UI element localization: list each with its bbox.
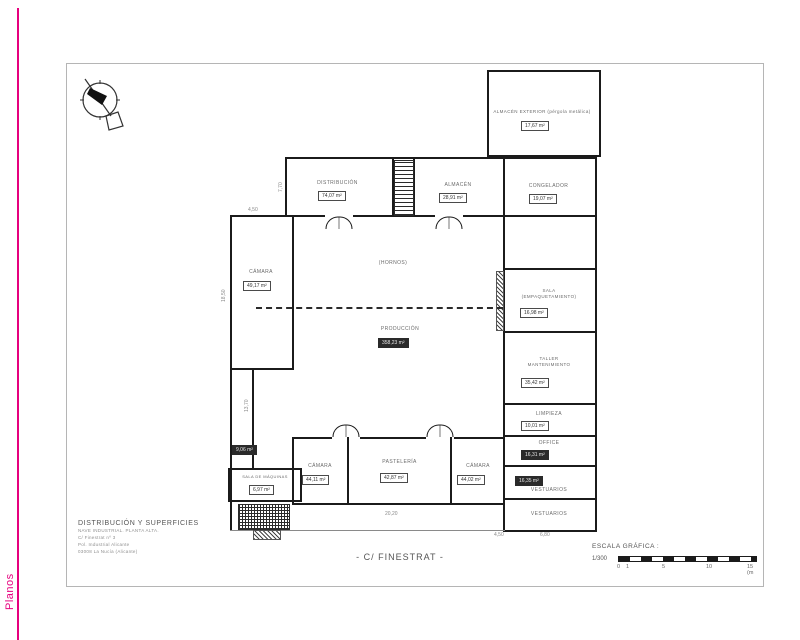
scale-tick: 10 (706, 564, 712, 570)
wall (503, 435, 597, 437)
hatch-wall (496, 271, 504, 331)
double-door-icon (426, 424, 454, 437)
title-block: DISTRIBUCIÓN Y SUPERFICIES NAVE INDUSTRI… (78, 520, 238, 555)
room-label-hornos: (HORNOS) (350, 260, 436, 266)
double-door-icon (332, 424, 360, 437)
dashed-divider (256, 307, 503, 309)
room-label-distribucion: DISTRIBUCIÓN (300, 180, 375, 186)
room-label-sala: SALA (542, 288, 555, 293)
room-label-taller: TALLER (539, 356, 558, 361)
double-door-icon (435, 216, 463, 229)
wall (503, 157, 505, 532)
room-label-pasteleria: PASTELERÍA (350, 459, 449, 465)
room-label-sala-maquinas: SALA DE MÁQUINAS (229, 474, 301, 480)
area-badge-sala-maquinas: 6,97 m² (249, 485, 274, 495)
wall (450, 437, 452, 505)
room-label-camara-izq: CÁMARA (232, 269, 290, 275)
area-badge-sala: 16,98 m² (520, 308, 548, 318)
wall (347, 437, 349, 505)
area-badge-almacen: 28,91 m² (439, 193, 467, 203)
wall (230, 368, 294, 370)
title-block-heading: DISTRIBUCIÓN Y SUPERFICIES (78, 520, 238, 527)
scale-tick: 5 (662, 564, 665, 570)
wall (228, 468, 302, 470)
room-label-almacen: ALMACÉN (420, 182, 496, 188)
area-badge-limpieza: 10,01 m² (521, 421, 549, 431)
wall (292, 503, 505, 505)
wall (230, 215, 232, 530)
wall (285, 157, 597, 159)
scale-tick: 0 (617, 564, 620, 570)
room-label-almacen-exterior: ALMACÉN EXTERIOR (pérgola metálica) (489, 109, 595, 115)
wall (595, 157, 597, 532)
wall (463, 215, 597, 217)
wall (285, 157, 287, 217)
wall (454, 437, 505, 439)
room-label-office: OFFICE (505, 440, 593, 446)
area-badge-camara-b2: 44,02 m² (457, 475, 485, 485)
room-label-produccion: PRODUCCIÓN (360, 326, 440, 332)
sheet-frame (66, 63, 764, 587)
wall (230, 215, 325, 217)
area-badge-pasteleria: 42,87 m² (380, 473, 408, 483)
room-label-vestuarios-2: VESTUARIOS (505, 511, 593, 517)
wall (503, 530, 597, 532)
room-label-sala-2: (EMPAQUETAMIENTO) (522, 294, 577, 299)
north-arrow-icon (76, 74, 130, 140)
wall (503, 498, 597, 500)
double-door-icon (325, 216, 353, 229)
dimension-label: 4,50 (494, 532, 504, 538)
wall (503, 403, 597, 405)
hatch-block (253, 530, 281, 540)
area-badge-pasillo: 9,06 m² (232, 445, 257, 455)
title-block-line: NAVE INDUSTRIAL. PLANTA ALTA. (78, 527, 238, 534)
scale-tick: 15 (m (747, 564, 760, 576)
street-label: - C/ FINESTRAT - (330, 552, 470, 562)
graphic-scale: ESCALA GRÁFICA : 1/300 0 1 5 10 15 (m (592, 543, 760, 550)
title-block-line: Pol. Industrial Alicante (78, 541, 238, 548)
wall (292, 215, 294, 368)
area-badge-produccion: 358,23 m² (378, 338, 409, 348)
room-label-vestuarios-1: VESTUARIOS (505, 487, 593, 493)
dimension-label: 18,50 (221, 289, 227, 302)
scale-ratio: 1/300 (592, 556, 607, 562)
scale-tick: 1 (626, 564, 629, 570)
wall (360, 437, 426, 439)
area-badge-taller: 35,42 m² (521, 378, 549, 388)
dimension-label: 7,70 (278, 182, 284, 192)
area-badge-vestuarios-1: 16,35 m² (515, 476, 543, 486)
title-block-line: 03008 La Nucía (Alicante) (78, 548, 238, 555)
accent-line (17, 8, 19, 640)
stairs-icon (238, 504, 290, 530)
dimension-label: 20,20 (385, 511, 398, 517)
scale-heading: ESCALA GRÁFICA : (592, 543, 760, 550)
scale-bar (618, 556, 757, 562)
room-label-limpieza: LIMPIEZA (505, 411, 593, 417)
room-label-congelador: CONGELADOR (510, 183, 587, 189)
area-badge-almacen-exterior: 17,67 m² (521, 121, 549, 131)
planos-side-label: Planos (4, 573, 16, 610)
area-badge-camara-izq: 49,17 m² (243, 281, 271, 291)
wall (228, 500, 302, 502)
wall (503, 331, 597, 333)
wall (503, 465, 597, 467)
room-label-camara-b1: CÁMARA (294, 463, 346, 469)
title-block-line: C/ Finestrat nº 3 (78, 534, 238, 541)
wall (503, 268, 597, 270)
dimension-label: 13,70 (244, 399, 250, 412)
dimension-label: 6,80 (540, 532, 550, 538)
room-label-camara-b2: CÁMARA (452, 463, 504, 469)
area-badge-congelador: 19,07 m² (529, 194, 557, 204)
dimension-label: 4,50 (248, 207, 258, 213)
wall (292, 437, 294, 505)
wall (292, 437, 332, 439)
area-badge-camara-b1: 44,11 m² (302, 475, 329, 485)
area-badge-office: 16,31 m² (521, 450, 549, 460)
stairs-icon (394, 160, 414, 216)
room-label-taller-2: MANTENIMIENTO (528, 362, 571, 367)
area-badge-distribucion: 74,07 m² (318, 191, 346, 201)
